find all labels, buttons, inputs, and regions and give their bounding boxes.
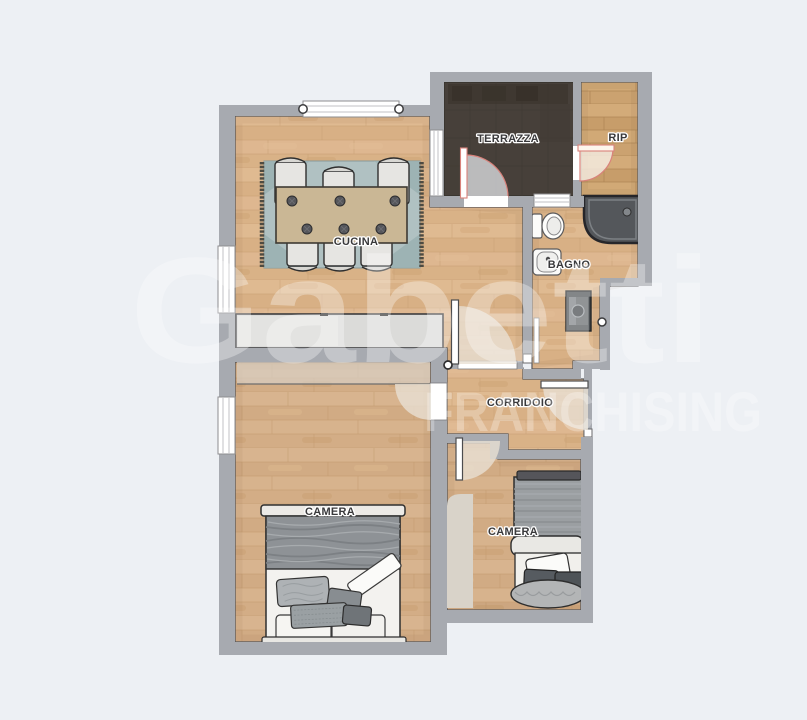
svg-text:RIP: RIP <box>608 132 627 144</box>
svg-text:FRANCHISING: FRANCHISING <box>424 380 762 443</box>
svg-text:TERRAZZA: TERRAZZA <box>477 133 539 145</box>
svg-text:CAMERA: CAMERA <box>305 506 355 518</box>
svg-text:CAMERA: CAMERA <box>488 526 538 538</box>
svg-text:Gabetti: Gabetti <box>130 226 712 394</box>
